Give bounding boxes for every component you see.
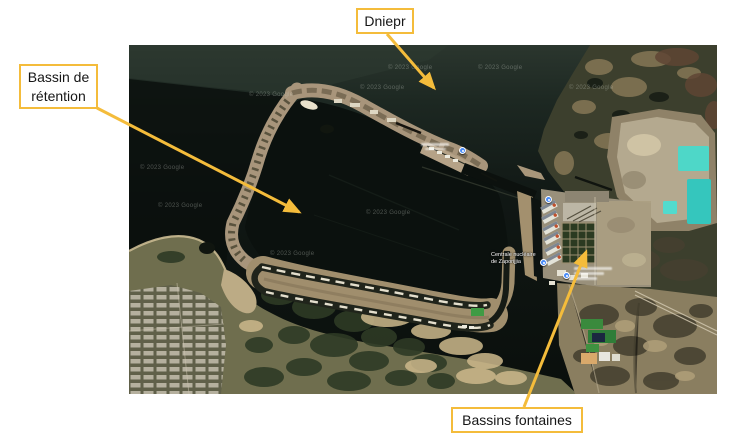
callout-bassin-retention-label: Bassin de rétention [25, 68, 92, 106]
plant-place-label-line1: Centrale nucléaire [491, 252, 536, 259]
map-label-blur [574, 267, 612, 270]
callout-dniepr-label: Dniepr [364, 12, 405, 31]
map-label-blur [574, 272, 604, 275]
callout-bassins-fontaines-label: Bassins fontaines [462, 411, 572, 430]
plant-place-label: Centrale nucléaire de Zaporijjia [491, 252, 536, 266]
map-pin-icon [563, 272, 570, 279]
pump-station [471, 308, 484, 316]
map-pin-icon [545, 196, 552, 203]
spray-ponds-grid [562, 223, 595, 263]
callout-bassins-fontaines: Bassins fontaines [451, 407, 583, 433]
map-label-blur [421, 143, 449, 146]
callout-dniepr: Dniepr [356, 8, 414, 34]
garden-plots [129, 285, 226, 394]
switchyard [565, 191, 609, 202]
turquoise-pond [663, 201, 677, 214]
map-label-blur [425, 148, 446, 151]
satellite-image [129, 45, 717, 394]
scrubland [557, 283, 717, 394]
turquoise-pond [687, 179, 711, 224]
turquoise-pond [678, 146, 709, 171]
dike-lagoon [320, 125, 334, 134]
map-pin-icon [540, 259, 547, 266]
satellite-map: © 2023 Google © 2023 Google © 2023 Googl… [129, 45, 717, 394]
plant-place-label-line2: de Zaporijjia [491, 259, 536, 266]
callout-bassin-retention: Bassin de rétention [19, 64, 98, 109]
plant-yard [597, 201, 651, 285]
map-pin-icon [459, 147, 466, 154]
slide: © 2023 Google © 2023 Google © 2023 Googl… [0, 0, 750, 442]
map-label-blur [574, 277, 597, 280]
small-lake [199, 242, 215, 254]
